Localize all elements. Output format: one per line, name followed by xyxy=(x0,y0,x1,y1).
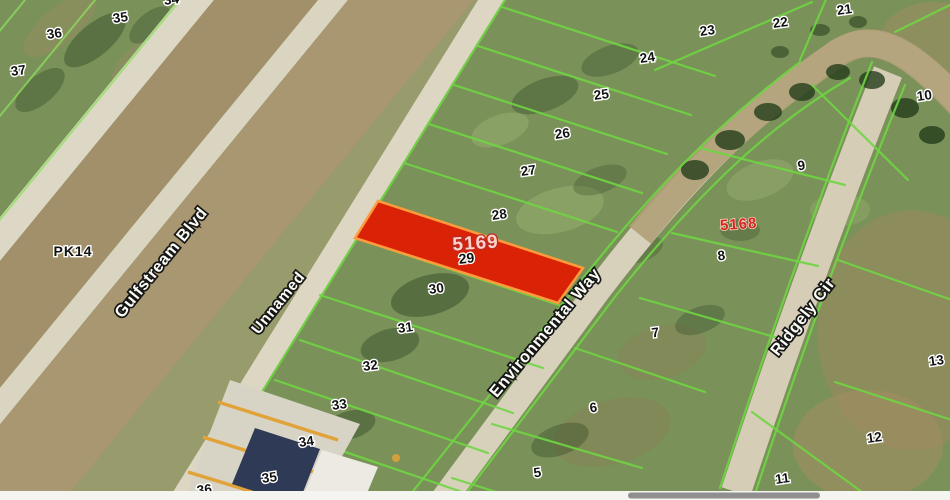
adjacent-parcel-id-label: 5168 xyxy=(719,215,757,235)
aerial-map[interactable]: Gulfstream Blvd Unnamed Environmental Wa… xyxy=(0,0,950,500)
lot-label-13: 13 xyxy=(928,352,945,369)
lot-label-21: 21 xyxy=(836,1,853,18)
lot-label-33: 33 xyxy=(331,396,348,413)
lot-label-34: 34 xyxy=(298,433,315,450)
lot-label-35-west: 35 xyxy=(112,9,129,26)
lot-label-25: 25 xyxy=(593,86,610,103)
lot-label-36-west: 36 xyxy=(46,25,63,42)
lot-label-10: 10 xyxy=(916,87,933,104)
lot-label-22: 22 xyxy=(772,14,789,31)
lot-label-24: 24 xyxy=(639,49,656,66)
lot-label-30: 30 xyxy=(428,280,445,297)
lot-label-11: 11 xyxy=(774,470,791,487)
lot-label-37: 37 xyxy=(10,62,27,79)
lot-label-32: 32 xyxy=(362,357,379,374)
lot-label-31: 31 xyxy=(397,319,414,336)
lot-label-29: 29 xyxy=(458,249,475,267)
lot-label-35-south: 35 xyxy=(261,469,278,486)
lot-label-23: 23 xyxy=(699,22,716,39)
horizontal-scrollbar[interactable] xyxy=(0,491,950,500)
site-marker xyxy=(392,454,400,462)
lot-label-26: 26 xyxy=(554,125,571,142)
lot-label-12: 12 xyxy=(866,429,883,446)
lot-label-27: 27 xyxy=(520,162,537,179)
map-viewport: Gulfstream Blvd Unnamed Environmental Wa… xyxy=(0,0,950,500)
scrollbar-thumb[interactable] xyxy=(628,493,820,499)
plat-code-label: PK14 xyxy=(53,243,92,259)
lot-label-28: 28 xyxy=(491,206,508,223)
